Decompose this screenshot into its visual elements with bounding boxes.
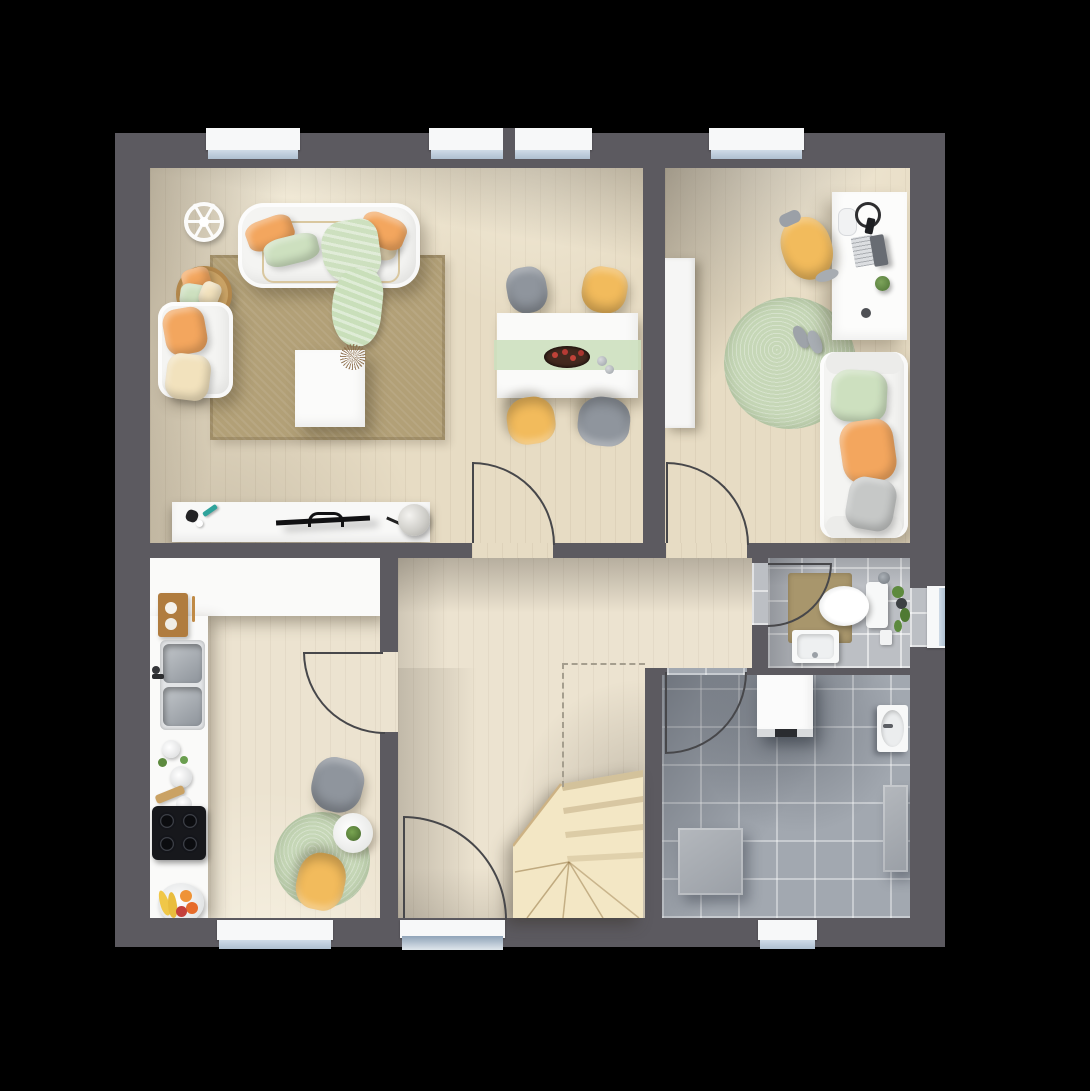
living-dining-room <box>150 168 643 543</box>
toilet-bowl <box>819 586 869 626</box>
kitchen-faucet <box>152 674 164 679</box>
plant-leaves <box>894 620 902 632</box>
utility-storage-box <box>678 828 743 895</box>
tv-stand <box>308 512 344 527</box>
office-sofa-pillow-orange <box>837 417 899 486</box>
door-opening-living-hall <box>472 543 553 558</box>
decor-wheel <box>184 202 224 242</box>
hallway-upper <box>398 558 752 668</box>
window-top-1-sill <box>206 128 300 150</box>
shower-head <box>878 572 890 584</box>
toilet-cistern <box>866 582 888 628</box>
berry <box>570 355 576 361</box>
dining-chair-yellow-bottom-left <box>504 394 558 447</box>
sink-basin-top <box>163 644 202 683</box>
burner <box>158 835 176 853</box>
bistro-chair-gray <box>306 753 369 818</box>
stairs-headroom-dashed-outline <box>562 663 645 787</box>
bathroom-bin <box>880 630 892 645</box>
burner <box>181 835 199 853</box>
table-jar <box>597 356 607 366</box>
window-top-2-mullion <box>503 128 515 159</box>
window-bottom-utility-sill <box>758 920 817 940</box>
sink-basin-bottom <box>163 687 202 726</box>
table-jar <box>605 365 614 374</box>
floor-shading <box>398 558 752 668</box>
berry <box>552 352 558 358</box>
washbasin-faucet <box>812 652 818 658</box>
entrance-door-slab <box>402 936 503 950</box>
double-sink <box>160 640 205 730</box>
door-opening-office-hall <box>666 543 747 558</box>
dining-chair-yellow-top-right <box>578 263 630 316</box>
herb-sprig <box>158 758 167 767</box>
window-bottom-utility-glass <box>760 940 815 949</box>
utility-sink <box>877 705 908 752</box>
desk-knob <box>861 308 871 318</box>
apple <box>176 906 187 917</box>
armchair-pillow-cream <box>163 351 212 402</box>
plant-leaves <box>900 608 910 622</box>
screenshot-canvas <box>0 0 1090 1091</box>
egg <box>165 602 177 614</box>
office-tall-cabinet <box>665 258 695 428</box>
window-top-1-glass <box>208 150 298 159</box>
orange-fruit <box>180 890 192 902</box>
window-top-2-glass-right <box>515 150 590 159</box>
dining-chair-gray-top-left <box>503 264 550 316</box>
egg <box>165 618 177 630</box>
cup <box>162 740 180 758</box>
window-top-3-glass <box>711 150 802 159</box>
window-top-3-sill <box>709 128 804 150</box>
window-bottom-kitchen-glass <box>219 940 331 949</box>
coffee-table-decor-star <box>340 344 366 370</box>
table-plant <box>346 826 361 841</box>
burner <box>181 812 199 830</box>
kitchen-faucet-base <box>152 666 160 674</box>
washing-machine <box>757 675 813 737</box>
window-top-2-glass-left <box>431 150 503 159</box>
utility-tall-cabinet <box>883 785 908 872</box>
window-right-bathroom-glass <box>939 588 945 646</box>
cutting-board <box>158 593 188 637</box>
window-bottom-kitchen-sill <box>217 920 333 940</box>
cooktop <box>152 806 206 860</box>
office-sofa-pillow-mint <box>830 369 889 424</box>
wooden-spoon <box>192 596 195 622</box>
berry <box>562 349 568 355</box>
pompom-decor <box>398 504 430 536</box>
burner <box>158 812 176 830</box>
wheel-hub <box>199 217 209 227</box>
herb-sprig <box>180 756 188 764</box>
utility-sink-bowl <box>881 710 904 747</box>
door-opening-bathroom <box>752 563 768 625</box>
washbasin <box>792 630 839 663</box>
berry <box>578 350 584 356</box>
plant-leaves <box>892 586 904 598</box>
desk-plant <box>875 276 890 291</box>
washer-control-panel <box>757 729 813 737</box>
decor-object-white <box>196 520 203 527</box>
bathroom-window-niche <box>910 588 927 647</box>
utility-faucet <box>883 724 893 728</box>
floor-plan <box>115 128 945 952</box>
dining-chair-gray-bottom-right <box>576 394 633 448</box>
stairs-body <box>513 770 643 918</box>
winder-staircase <box>513 770 643 918</box>
kitchen <box>150 558 380 918</box>
orange-fruit <box>186 902 198 914</box>
